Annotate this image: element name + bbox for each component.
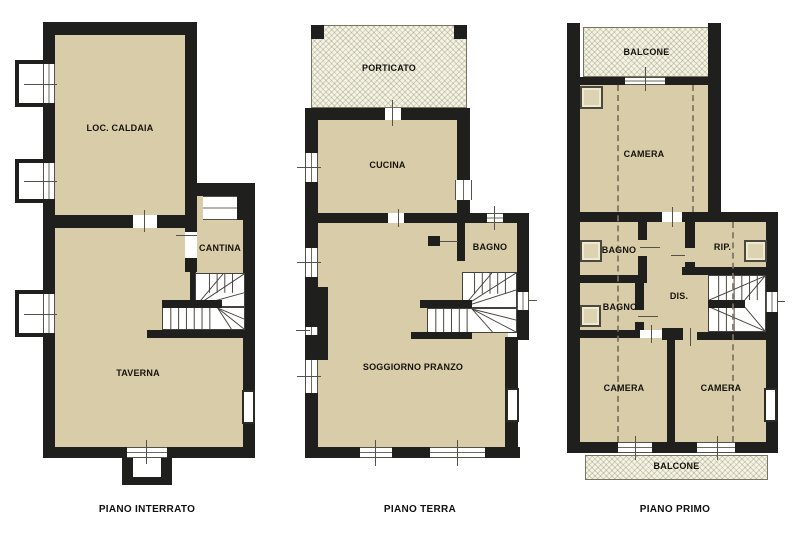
room-label-balcone-top: BALCONE	[583, 47, 710, 57]
room-label-soggiorno: SOGGIORNO PRANZO	[318, 362, 508, 372]
stair-landing	[420, 300, 472, 308]
plan-title-terra: PIANO TERRA	[320, 504, 520, 515]
window	[764, 388, 777, 422]
door-tick	[638, 316, 658, 317]
wall	[43, 215, 133, 228]
door-opening	[133, 215, 157, 228]
room-label-cantina: CANTINA	[190, 243, 250, 253]
window-tick	[494, 206, 495, 230]
door-tick	[144, 210, 145, 232]
wall	[411, 332, 472, 339]
room-label-cucina: CUCINA	[318, 160, 457, 170]
window-tick	[457, 440, 458, 466]
wall	[305, 447, 520, 458]
wall	[638, 222, 647, 240]
roof-projection-line	[732, 222, 734, 442]
window	[203, 196, 237, 220]
window-tick	[375, 440, 376, 466]
door-opening	[385, 108, 401, 120]
wall	[517, 213, 529, 340]
window	[360, 447, 392, 458]
window-tick	[635, 436, 636, 460]
wall	[567, 442, 778, 453]
window	[455, 180, 472, 200]
window-tick	[146, 440, 147, 464]
window	[517, 292, 529, 310]
door-tick	[645, 67, 646, 91]
room-label-bagno: BAGNO	[460, 242, 520, 252]
wall	[185, 22, 197, 193]
window-tick	[297, 376, 321, 377]
door-stub	[428, 236, 440, 246]
stair-landing	[162, 300, 222, 308]
wall-pier	[318, 287, 328, 360]
room-label-rip: RIP.	[695, 242, 750, 252]
room-label-dis: DIS.	[650, 291, 708, 301]
staircase	[162, 307, 245, 330]
wall	[237, 196, 248, 220]
window-tick	[24, 181, 57, 182]
door-tick	[671, 255, 685, 256]
window-tick	[778, 301, 785, 302]
room-label-bagno-1: BAGNO	[589, 245, 649, 255]
room-label-camera-right: CAMERA	[676, 383, 766, 393]
wall	[305, 213, 388, 223]
window	[487, 213, 503, 223]
door-opening	[388, 213, 404, 223]
window	[697, 442, 735, 453]
room-label-bagno-2: BAGNO	[590, 302, 650, 312]
wall	[567, 23, 580, 453]
wall	[43, 228, 55, 458]
wall	[404, 213, 523, 223]
wall	[638, 256, 647, 277]
vent-window	[305, 327, 318, 335]
window-tick	[529, 300, 537, 301]
door-tick	[392, 100, 393, 126]
room-label-camera-top: CAMERA	[580, 149, 708, 159]
door-tick	[176, 235, 197, 236]
room-label-porticato: PORTICATO	[311, 63, 467, 73]
door-tick	[690, 328, 691, 346]
wall	[122, 477, 172, 485]
door-tick	[672, 207, 673, 227]
wall	[635, 322, 644, 330]
shaft-fixture	[580, 86, 603, 109]
post	[454, 25, 467, 39]
door	[506, 388, 519, 422]
staircase	[427, 308, 517, 333]
window-tick	[24, 84, 57, 85]
wall	[682, 267, 766, 275]
window-tick	[296, 330, 310, 331]
window-tick	[297, 262, 321, 263]
window-tick	[24, 314, 57, 315]
room-label-taverna: TAVERNA	[55, 368, 221, 378]
wall	[147, 330, 255, 338]
floor-plans-canvas: LOC. CALDAIA CANTINA TAVERNA PIANO INTER…	[0, 0, 800, 550]
door-tick	[398, 209, 399, 227]
window	[766, 292, 778, 312]
post	[311, 25, 324, 39]
door-tick	[651, 325, 652, 343]
window	[242, 390, 255, 424]
wall	[43, 22, 197, 35]
light-well	[133, 458, 161, 477]
wall	[567, 330, 640, 338]
plan-title-primo: PIANO PRIMO	[575, 504, 775, 515]
wall	[185, 193, 197, 232]
room-label-camera-left: CAMERA	[580, 383, 668, 393]
stair-landing	[708, 300, 745, 308]
room-label-balcone-bottom: BALCONE	[585, 461, 768, 471]
plan-title-interrato: PIANO INTERRATO	[47, 504, 247, 515]
wall	[667, 340, 675, 442]
wall	[567, 275, 647, 283]
window-tick	[717, 436, 718, 460]
wall	[662, 328, 683, 340]
wall	[685, 222, 695, 248]
room-label-caldaia: LOC. CALDAIA	[55, 123, 185, 133]
door-tick	[440, 241, 458, 242]
window	[127, 447, 167, 458]
